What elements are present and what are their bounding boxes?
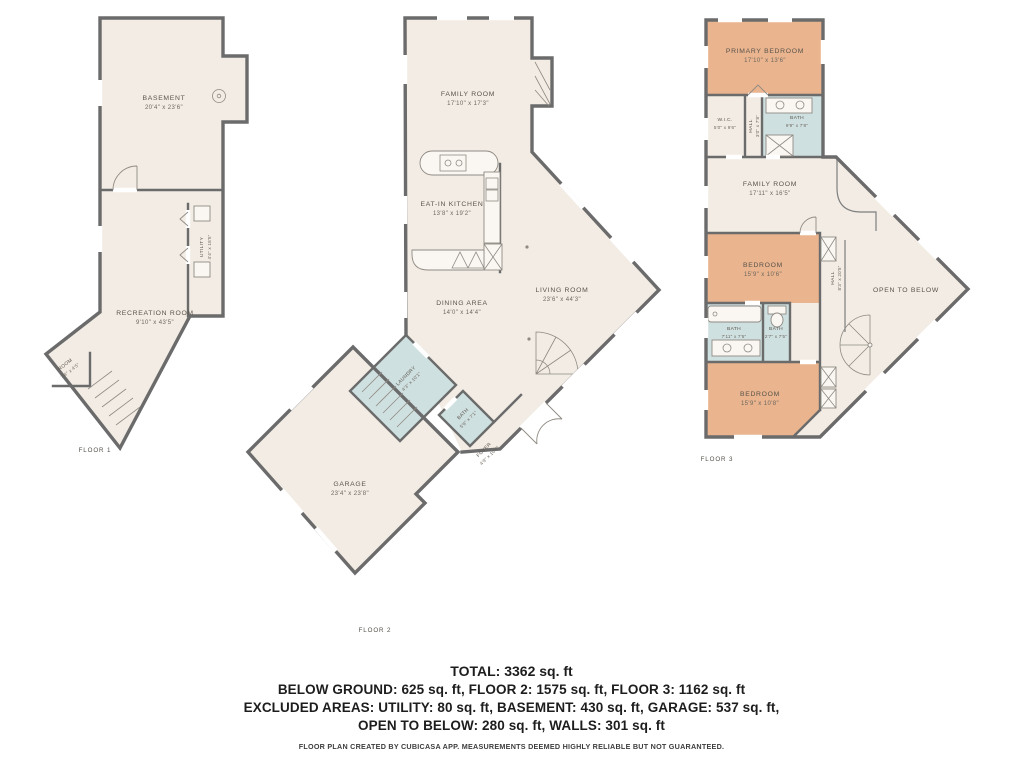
room-dims-garage: 23'4" x 23'8" xyxy=(331,491,369,497)
floor-plan-page: BASEMENT 20'4" x 23'6" UTILITY 4'4" x 18… xyxy=(0,0,1023,767)
room-dims-utility: 4'4" x 18'5" xyxy=(207,234,212,259)
room-dims-bath-top: 9'9" x 7'8" xyxy=(786,123,808,128)
room-dims-hall-top: 3'0" x 7'8" xyxy=(755,115,760,137)
room-label-family2: FAMILY ROOM xyxy=(441,91,495,98)
room-label-utility: UTILITY xyxy=(199,236,205,257)
room-dims-primary: 17'10" x 13'6" xyxy=(744,58,786,64)
floor1-label: FLOOR 1 xyxy=(79,447,112,454)
floor-plans-canvas: BASEMENT 20'4" x 23'6" UTILITY 4'4" x 18… xyxy=(0,0,1023,660)
room-label-recreation: RECREATION ROOM xyxy=(116,310,194,317)
room-dims-hall-right: 8'3" x 20'5" xyxy=(837,265,842,290)
room-dims-basement: 20'4" x 23'6" xyxy=(145,105,183,111)
room-dims-recreation: 9'10" x 43'5" xyxy=(136,320,174,326)
room-label-dining: DINING AREA xyxy=(436,300,488,307)
floor1-footprint xyxy=(46,18,247,448)
total-area-text: TOTAL: 3362 sq. ft xyxy=(0,663,1023,679)
room-label-living: LIVING ROOM xyxy=(535,287,588,294)
room-label-bedroom3: BEDROOM xyxy=(740,391,780,398)
room-label-kitchen: EAT-IN KITCHEN xyxy=(421,201,484,208)
spiral-staircase-pole xyxy=(868,343,872,347)
room-dims-family2: 17'10" x 17'3" xyxy=(447,101,489,107)
disclaimer-text: FLOOR PLAN CREATED BY CUBICASA APP. MEAS… xyxy=(0,742,1023,751)
bath-top-vanity xyxy=(766,98,812,113)
fireplace-bump xyxy=(532,58,552,106)
room-dims-living: 23'6" x 44'3" xyxy=(543,297,581,303)
room-label-bath2: BATH xyxy=(769,326,783,332)
room-dims-bedroom2: 15'9" x 10'6" xyxy=(744,272,782,278)
living-dot-1 xyxy=(525,245,528,248)
room-dims-bedroom3: 15'9" x 10'8" xyxy=(741,401,779,407)
bath1-tub xyxy=(708,306,761,322)
room-dims-family3: 17'11" x 16'5" xyxy=(749,191,790,197)
living-dot-2 xyxy=(527,337,530,340)
room-dims-bath1: 7'11" x 7'5" xyxy=(722,334,747,339)
room-dims-bath2: 2'7" x 7'5" xyxy=(765,334,787,339)
bath1-vanity xyxy=(712,340,760,356)
room-label-primary: PRIMARY BEDROOM xyxy=(726,48,804,55)
floor2-label: FLOOR 2 xyxy=(359,627,392,634)
utility-appliance-2 xyxy=(194,262,210,277)
room-label-family3: FAMILY ROOM xyxy=(743,181,797,188)
room-label-bath-top: BATH xyxy=(790,115,804,121)
room-label-hall-top: HALL xyxy=(748,119,754,132)
room-dims-dining: 14'0" x 14'4" xyxy=(443,310,481,316)
room-label-open-to-below: OPEN TO BELOW xyxy=(873,287,939,294)
floor2-plan: FAMILY ROOM 17'10" x 17'3" EAT-IN KITCHE… xyxy=(248,18,659,634)
floor3-label: FLOOR 3 xyxy=(701,456,734,463)
room-label-bedroom2: BEDROOM xyxy=(743,262,783,269)
summary-footer: TOTAL: 3362 sq. ft BELOW GROUND: 625 sq.… xyxy=(0,663,1023,751)
bath2-toilet-bowl xyxy=(771,313,783,327)
room-dims-kitchen: 13'8" x 19'2" xyxy=(433,211,471,217)
room-label-bath1: BATH xyxy=(727,326,741,332)
room-label-wic: W.I.C. xyxy=(717,117,732,123)
room-label-hall-right: HALL xyxy=(830,271,836,284)
kitchen-counter-bottom xyxy=(412,250,484,270)
excluded-areas-text-2: OPEN TO BELOW: 280 sq. ft, WALLS: 301 sq… xyxy=(0,718,1023,733)
excluded-areas-text-1: EXCLUDED AREAS: UTILITY: 80 sq. ft, BASE… xyxy=(0,700,1023,715)
floor1-plan: BASEMENT 20'4" x 23'6" UTILITY 4'4" x 18… xyxy=(46,18,247,454)
utility-appliance-1 xyxy=(194,206,210,221)
room-label-garage: GARAGE xyxy=(333,481,366,488)
room-dims-wic: 5'0" x 9'6" xyxy=(714,125,736,130)
floor3-plan: PRIMARY BEDROOM 17'10" x 13'6" W.I.C. 5'… xyxy=(701,20,968,463)
floor-areas-text: BELOW GROUND: 625 sq. ft, FLOOR 2: 1575 … xyxy=(0,682,1023,697)
room-label-basement: BASEMENT xyxy=(143,95,186,102)
